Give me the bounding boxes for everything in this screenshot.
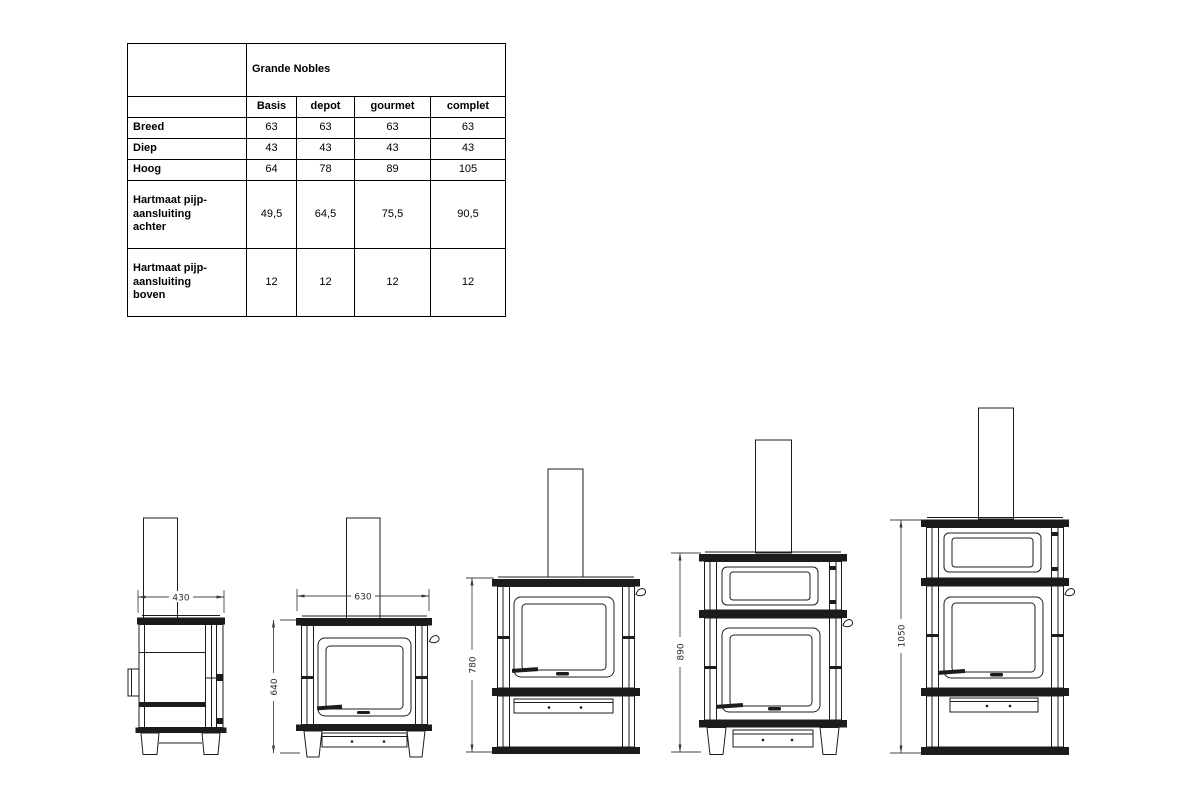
storage-base [492, 696, 640, 754]
row-label: Hartmaat pijp- aansluiting achter [128, 181, 247, 249]
legs [141, 733, 220, 755]
cell-value: 43 [297, 139, 355, 160]
cell-value: 89 [355, 160, 431, 181]
base [707, 728, 839, 755]
chimney [144, 518, 178, 619]
figure-stove-gourmet: 890 [660, 430, 875, 760]
storage-base [921, 696, 1069, 755]
width-dim-label: 430 [172, 594, 189, 604]
height-dimension: 640 [268, 620, 301, 753]
height-dim-label: 890 [677, 643, 687, 660]
figure-stove-complet: 1050 [880, 395, 1096, 763]
side-handle [128, 669, 139, 696]
oven-hinge [1052, 567, 1059, 571]
latch-handle [843, 620, 853, 627]
cell-value: 49,5 [247, 181, 297, 249]
firebox-section [921, 586, 1075, 696]
height-dim-label: 780 [469, 656, 479, 673]
figure-stove-basis-front: 630 640 [260, 505, 450, 765]
page-canvas: Grande Nobles Basis depot gourmet comple… [0, 0, 1200, 800]
door-frame [944, 597, 1043, 678]
cell-value: 64 [247, 160, 297, 181]
ash-drawer [733, 730, 813, 747]
door-hinge [217, 674, 223, 681]
cell-value: 43 [247, 139, 297, 160]
latch-handle [636, 589, 646, 596]
oven-hinge [830, 600, 837, 604]
brand-logo [556, 672, 569, 676]
table-row: Hoog 64 78 89 105 [128, 160, 506, 181]
figure-stove-side-view: 430 [120, 505, 256, 760]
row-label: Breed [128, 118, 247, 139]
stove-body [296, 616, 439, 731]
oven-door-frame [944, 533, 1041, 572]
oven-hinge [830, 566, 837, 570]
col-header-depot: depot [297, 97, 355, 118]
cell-value: 64,5 [297, 181, 355, 249]
cell-value: 43 [355, 139, 431, 160]
cell-value: 12 [355, 249, 431, 317]
door-hinge [217, 718, 223, 724]
spec-table: Grande Nobles Basis depot gourmet comple… [127, 43, 506, 317]
drawer [514, 699, 613, 713]
cell-value: 43 [431, 139, 506, 160]
cell-value: 63 [247, 118, 297, 139]
brand-logo [768, 707, 781, 711]
cell-value: 12 [431, 249, 506, 317]
cell-value: 63 [355, 118, 431, 139]
height-dimension: 780 [466, 578, 494, 752]
firebox-section [699, 618, 853, 728]
door-frame [318, 638, 411, 716]
table-corner-cell [128, 44, 247, 97]
row-label: Diep [128, 139, 247, 160]
table-row: Breed 63 63 63 63 [128, 118, 506, 139]
ash-drawer [322, 733, 407, 747]
col-header-basis: Basis [247, 97, 297, 118]
height-dimension: 1050 [890, 520, 923, 753]
row-label: Hoog [128, 160, 247, 181]
chimney [347, 518, 381, 619]
brand-logo [357, 711, 370, 714]
brand-logo [990, 673, 1003, 677]
cell-value: 63 [431, 118, 506, 139]
cell-value: 12 [297, 249, 355, 317]
col-header-complet: complet [431, 97, 506, 118]
cell-value: 75,5 [355, 181, 431, 249]
table-row: Hartmaat pijp- aansluiting boven 12 12 1… [128, 249, 506, 317]
table-row: Hartmaat pijp- aansluiting achter 49,5 6… [128, 181, 506, 249]
latch-handle [430, 636, 440, 643]
height-dimension: 890 [671, 553, 701, 752]
stove-body [492, 577, 646, 696]
table-subheader-empty [128, 97, 247, 118]
oven-door-frame [722, 567, 818, 605]
table-row: Diep 43 43 43 43 [128, 139, 506, 160]
door-frame [722, 628, 820, 712]
width-dim-label: 630 [354, 593, 371, 603]
table-title: Grande Nobles [247, 44, 506, 97]
cell-value: 90,5 [431, 181, 506, 249]
latch-handle [1065, 589, 1075, 596]
chimney [979, 408, 1014, 519]
oven-section [699, 552, 847, 618]
base [304, 731, 425, 757]
cell-value: 63 [297, 118, 355, 139]
oven-section [921, 518, 1069, 587]
door-frame [514, 597, 614, 677]
cell-value: 78 [297, 160, 355, 181]
chimney [756, 440, 792, 553]
height-dim-label: 1050 [898, 624, 908, 647]
cell-value: 105 [431, 160, 506, 181]
drawer [950, 698, 1038, 712]
stove-body [128, 616, 227, 734]
cell-value: 12 [247, 249, 297, 317]
chimney [548, 469, 583, 577]
figure-stove-depot: 780 [458, 458, 662, 762]
row-label: Hartmaat pijp- aansluiting boven [128, 249, 247, 317]
oven-hinge [1052, 532, 1059, 536]
height-dim-label: 640 [270, 678, 280, 695]
col-header-gourmet: gourmet [355, 97, 431, 118]
